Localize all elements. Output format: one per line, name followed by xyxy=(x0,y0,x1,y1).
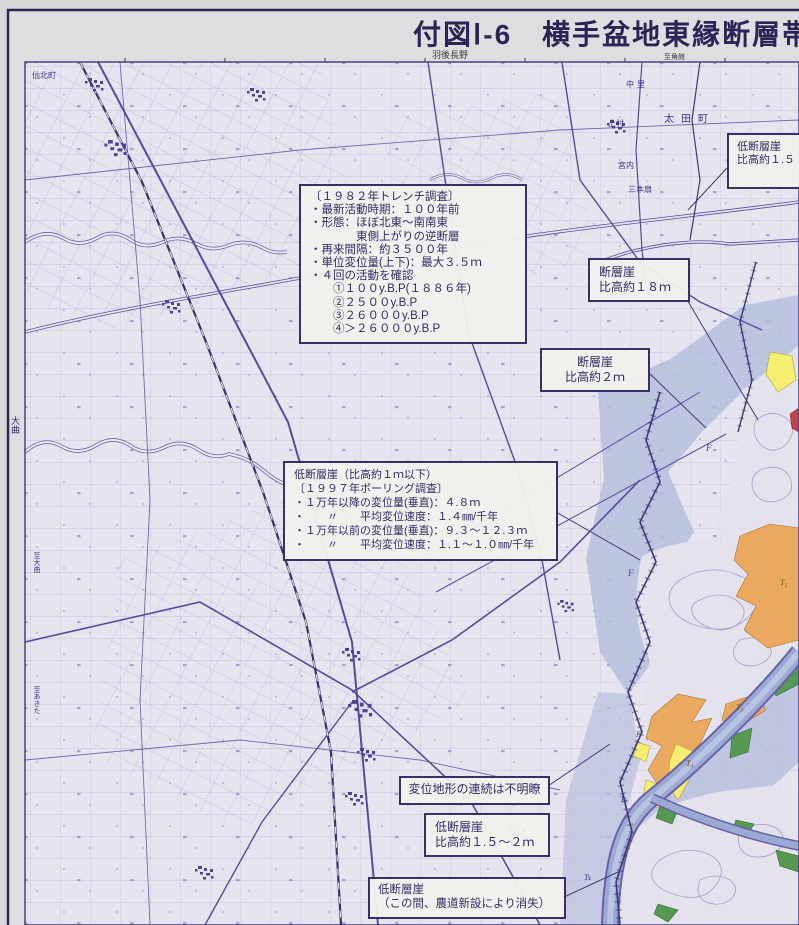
annotation-box-fault-scarp-2m: 断層崖 比高約２ｍ xyxy=(540,348,650,392)
sheet-name-label: 羽後長野 xyxy=(432,48,468,61)
geology-label: T₃ xyxy=(736,703,743,712)
map-label: 至あきた xyxy=(31,686,41,714)
annotation-box-displacement-unclear: 変位地形の連続は不明瞭 xyxy=(399,776,550,805)
map-label: 三本扇 xyxy=(628,184,652,195)
map-label: 大曲 xyxy=(9,416,22,434)
map-label: 上村 xyxy=(608,118,624,129)
annotation-box-boring-survey-1997: 低断層崖（比高約１ｍ以下） 〔１９９７年ボーリング調査〕 ・１万年以降の変位量(… xyxy=(283,461,558,561)
map-label: 中里 xyxy=(626,79,648,90)
geology-label: F xyxy=(636,730,641,739)
annotation-box-low-scarp-lost: 低断層崖 （この間、農道新設により消失） xyxy=(368,877,566,919)
map-label: 宮内 xyxy=(618,160,634,171)
annotation-box-fault-scarp-18m: 断層崖 比高約１８ｍ xyxy=(588,258,690,302)
map-label: 太田町 xyxy=(664,110,715,125)
geology-label: F xyxy=(706,443,712,453)
geology-label: T₂ xyxy=(780,578,787,587)
geology-label: Ts xyxy=(620,795,627,804)
scanned-fault-map-page: { "header": { "title": "付図Ⅰ-6 横手盆地東縁断層帯"… xyxy=(0,0,799,925)
page-title: 付図Ⅰ-6 横手盆地東縁断層帯 xyxy=(413,13,799,53)
annotation-box-low-scarp-south: 低断層崖 比高約１.５～２ｍ xyxy=(424,813,550,857)
annotation-box-low-scarp-northeast: 低断層崖 比高約１.５ xyxy=(727,133,799,189)
annotation-box-trench-survey-1982: 〔１９８２年トレンチ調査〕 ・最新活動時期：１００年前 ・形態：ほぼ北東～南南東… xyxy=(299,184,527,344)
map-label: 至大曲 xyxy=(31,552,41,573)
edge-destination-label: 至角館 xyxy=(664,52,685,62)
map-label: 仙北町 xyxy=(32,70,56,81)
geology-label: F xyxy=(628,568,634,578)
geology-label: Ts xyxy=(584,873,591,882)
geology-label: T₄ xyxy=(686,759,693,768)
